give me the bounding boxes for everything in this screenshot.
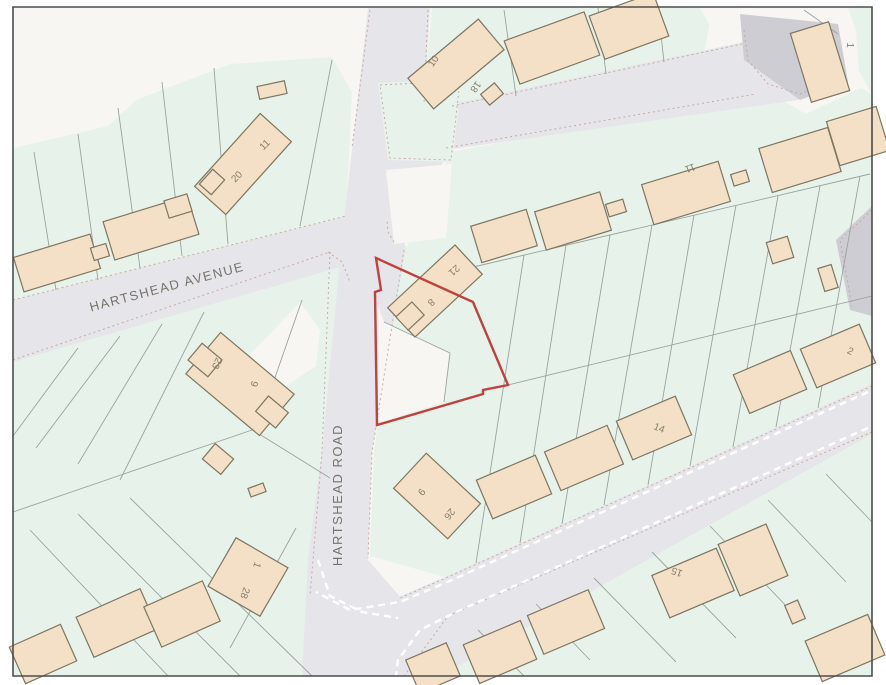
street-label: HARTSHEAD ROAD <box>330 424 345 566</box>
site-plan-page: 1018111202181123921492612815HARTSHEAD AV… <box>0 0 886 685</box>
site-plan-map: 1018111202181123921492612815HARTSHEAD AV… <box>0 0 886 685</box>
corner-plot <box>386 164 452 244</box>
